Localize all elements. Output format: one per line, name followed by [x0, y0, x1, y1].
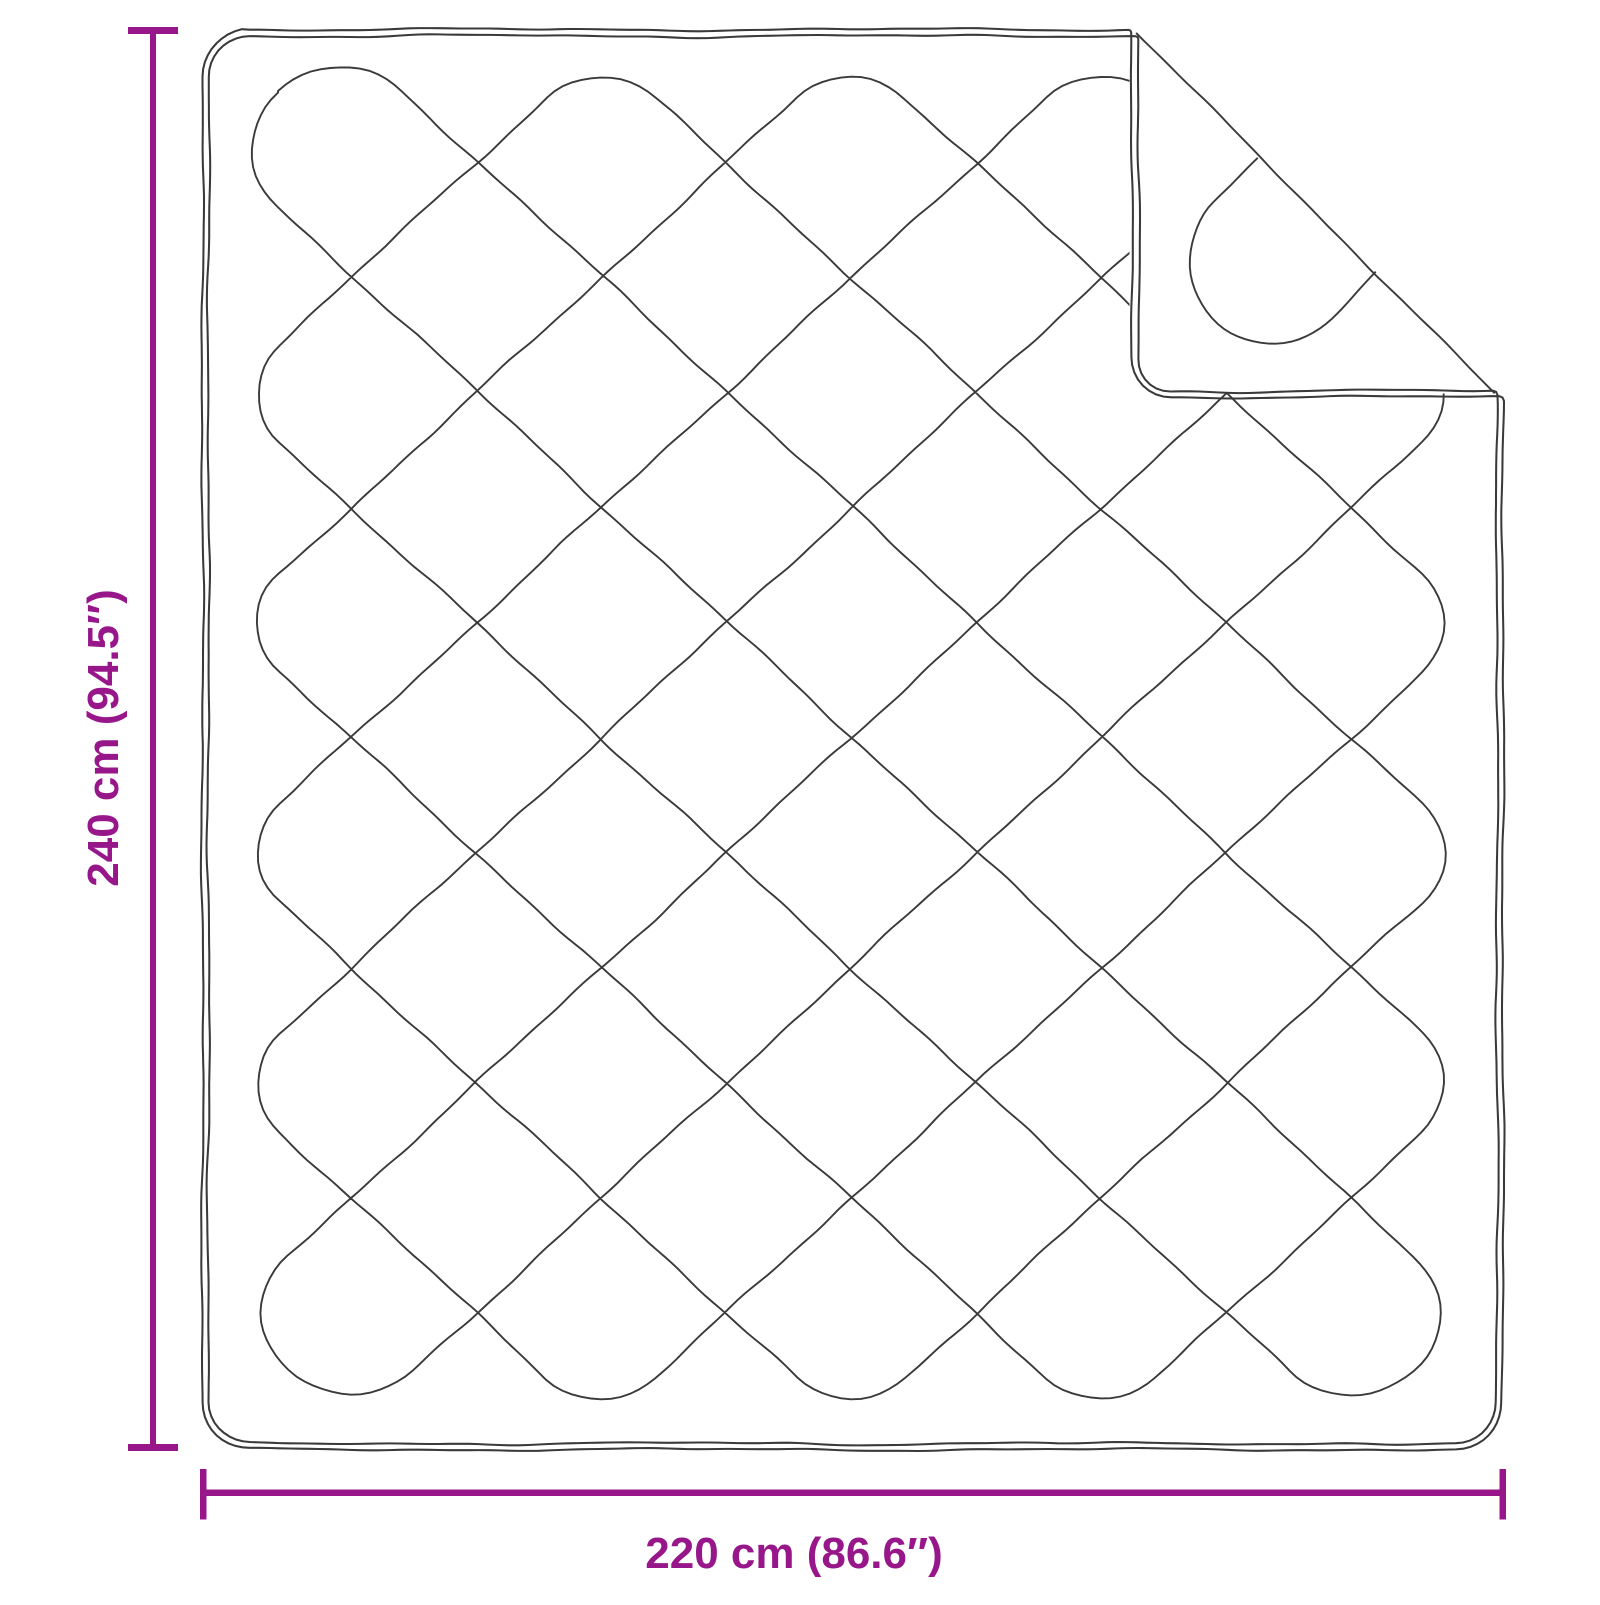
svg-text:220 cm (86.6″): 220 cm (86.6″): [645, 1529, 942, 1578]
svg-text:240 cm (94.5″): 240 cm (94.5″): [79, 589, 128, 886]
